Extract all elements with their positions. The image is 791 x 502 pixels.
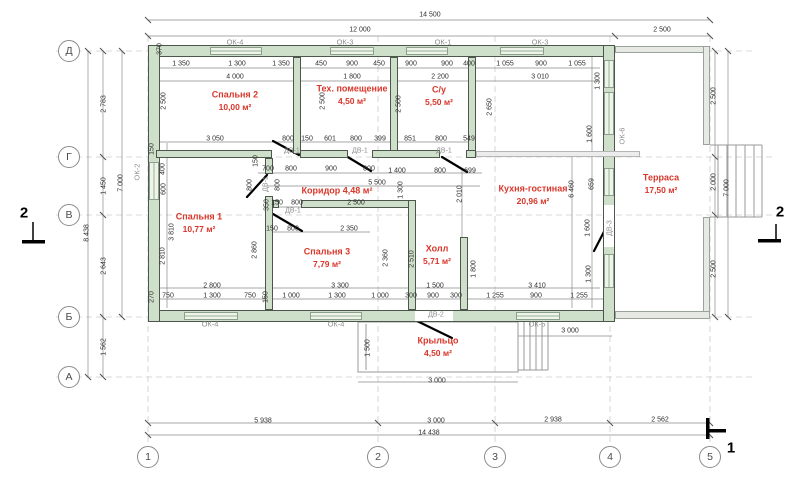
dim-label: 1 255	[486, 293, 504, 300]
dim-label: 400	[463, 61, 475, 68]
dim-label: 14 438	[418, 430, 439, 437]
dim-label: 699	[464, 168, 476, 175]
grid-bubble-4: 4	[599, 446, 621, 468]
dim-label: 1 562	[101, 338, 108, 356]
window-label: ОК-3	[532, 38, 549, 46]
dim-label: 4 000	[226, 74, 244, 81]
grid-bubble-1: 1	[137, 446, 159, 468]
dim-label: 1 450	[101, 177, 108, 195]
dim-label: 900	[530, 293, 542, 300]
dim-label: 1 300	[586, 265, 593, 283]
dim-label: 1 300	[203, 293, 221, 300]
door-label: ДВ-3	[607, 220, 614, 236]
door-label: ДВ-1	[284, 148, 300, 155]
dim-label: 150	[253, 155, 260, 167]
dim-label: 600	[161, 183, 168, 195]
dim-label: 350	[264, 199, 271, 211]
dim-label: 3 000	[427, 418, 445, 425]
dim-label: 7 000	[724, 179, 731, 197]
dim-label: 900	[535, 61, 547, 68]
window-right3	[604, 168, 614, 196]
dim-label: 2 643	[101, 257, 108, 275]
dim-label: 800	[247, 179, 254, 191]
dim-label: 1 055	[568, 61, 586, 68]
dim-label: 800	[435, 136, 447, 143]
room-name: Терраса	[643, 174, 679, 183]
room-area: 10,77 м²	[183, 225, 216, 234]
dim-label: 270	[149, 291, 156, 303]
dim-label: 800	[434, 168, 446, 175]
dim-label: 3 300	[331, 283, 349, 290]
dim-label: 851	[404, 136, 416, 143]
section-mark-1: 1	[727, 440, 735, 457]
dim-label: 2 500	[653, 27, 671, 34]
dim-label: 7 000	[118, 174, 125, 192]
dim-label: 1 300	[228, 61, 246, 68]
door-label: ДВ-1	[436, 148, 452, 155]
dim-label: 400	[160, 163, 167, 175]
dim-label: 2 810	[160, 247, 167, 265]
dim-label: 1 255	[570, 293, 588, 300]
room-area: 5,71 м²	[423, 257, 451, 266]
dim-label: 601	[324, 136, 336, 143]
grid-bubble-Д: Д	[58, 40, 80, 62]
room-area: 4,50 м²	[424, 349, 452, 358]
dim-label: 2 860	[252, 241, 259, 259]
dim-label: 12 000	[349, 27, 370, 34]
dim-label: 900	[427, 293, 439, 300]
dim-label: 900	[346, 61, 358, 68]
dim-label: 3 050	[206, 136, 224, 143]
dim-label: 450	[373, 61, 385, 68]
dim-label: 3 000	[561, 328, 579, 335]
dim-label: 1 500	[426, 283, 444, 290]
door-label: ДВ-1	[285, 208, 301, 215]
dim-label: 2 350	[340, 226, 358, 233]
dim-label: 800	[363, 166, 375, 173]
dim-label: 1 300	[398, 181, 405, 199]
door-label: ДВ-1	[263, 176, 270, 192]
dim-label: 1 300	[328, 293, 346, 300]
dim-label: 2 510	[409, 250, 416, 268]
dim-label: 1 600	[585, 219, 592, 237]
room-name: Коридор 4,48 м²	[302, 187, 373, 196]
dim-label: 2 938	[544, 417, 562, 424]
beam-line	[476, 151, 640, 157]
dim-label: 1 000	[282, 293, 300, 300]
dim-label: 3 810	[169, 223, 176, 241]
dim-label: 2 500	[711, 87, 718, 105]
dim-label: 1 055	[496, 61, 514, 68]
room-area: 10,00 м²	[219, 103, 252, 112]
dim-label: 3 010	[531, 74, 549, 81]
door-label: ДВ-1	[352, 148, 368, 155]
dim-label: 150	[263, 291, 270, 303]
dim-label: 1 300	[595, 72, 602, 90]
room-name: Спальня 2	[212, 91, 258, 100]
door-label: ДВ-2	[428, 312, 444, 319]
room-area: 5,50 м²	[425, 98, 453, 107]
grid-bubble-3: 3	[484, 446, 506, 468]
window-label: ОК-5	[529, 320, 546, 328]
dim-label: 800	[275, 179, 282, 191]
window-right2	[604, 92, 614, 135]
dim-label: 750	[162, 293, 174, 300]
room-name: Тех. помещение	[317, 85, 388, 94]
grid-bubble-2: 2	[367, 446, 389, 468]
dim-label: 3 410	[528, 283, 546, 290]
dim-label: 800	[291, 200, 303, 207]
dim-label: 6 460	[569, 180, 576, 198]
grid-bubble-5: 5	[699, 446, 721, 468]
dim-label: 150	[271, 200, 283, 207]
dim-label: 2 500	[711, 260, 718, 278]
section-flags	[22, 222, 781, 439]
window-label: ОК-6	[618, 128, 626, 145]
room-area: 7,79 м²	[313, 260, 341, 269]
room-name: С/у	[432, 86, 446, 95]
window-ok3	[330, 47, 374, 55]
dim-label: 1 350	[272, 61, 290, 68]
wall-corridor-top	[466, 150, 476, 158]
dim-label: 2 800	[203, 283, 221, 290]
dim-label: 1 800	[343, 74, 361, 81]
grid-bubble-А: А	[58, 366, 80, 388]
room-area: 20,96 м²	[517, 197, 550, 206]
window-label: ОК-4	[328, 320, 345, 328]
wall-partition	[293, 57, 301, 154]
terrace-wall-right	[703, 46, 710, 145]
dim-label: 8 438	[84, 224, 91, 242]
window-right4	[604, 254, 614, 288]
dim-label: 300	[450, 293, 462, 300]
dim-label: 1 400	[388, 168, 406, 175]
dim-label: 2 500	[161, 92, 168, 110]
dim-label: 1 350	[172, 61, 190, 68]
window-label: ОК-4	[202, 320, 219, 328]
dim-label: 2 783	[101, 95, 108, 113]
dim-label: 2 360	[383, 249, 390, 267]
terrace-wall-bottom	[615, 311, 710, 319]
dim-label: 2 500	[320, 92, 327, 110]
dim-label: 700	[262, 166, 274, 173]
dim-label: 2 000	[711, 173, 718, 191]
grid-bubble-Б: Б	[58, 306, 80, 328]
window-label: ОК-3	[337, 38, 354, 46]
dim-label: 1 500	[365, 339, 372, 357]
dim-label: 399	[374, 136, 386, 143]
room-area: 4,50 м²	[338, 97, 366, 106]
terrace-wall-top	[615, 46, 710, 53]
dim-label: 1 800	[471, 260, 478, 278]
room-name: Холл	[426, 245, 449, 254]
dim-label: 150	[301, 136, 313, 143]
window-ok2	[149, 162, 159, 200]
dim-label: 800	[350, 136, 362, 143]
dim-label: 900	[405, 61, 417, 68]
dim-label: 1 600	[587, 125, 594, 143]
dim-label: 750	[244, 293, 256, 300]
dim-label: 2 010	[457, 185, 464, 203]
terrace-wall-right	[703, 217, 710, 318]
window-right1	[604, 60, 614, 88]
dim-label: 2 500	[347, 200, 365, 207]
dim-label: 800	[285, 166, 297, 173]
dim-label: 150	[266, 226, 278, 233]
wall-corridor-top	[372, 150, 440, 158]
floor-plan-canvas: 14 50012 0002 5001 3501 3001 35045090045…	[0, 0, 791, 502]
dim-label: 3 000	[428, 378, 446, 385]
window-ok1	[406, 47, 448, 55]
room-name: Кухня-гостиная	[499, 185, 568, 194]
section-mark-2: 2	[776, 204, 784, 221]
dim-label: 300	[405, 293, 417, 300]
window-label: ОК-1	[435, 38, 452, 46]
room-name: Крыльцо	[418, 337, 459, 346]
window-label: ОК-4	[227, 38, 244, 46]
dim-label: 5 938	[254, 418, 272, 425]
window-ok4	[210, 47, 262, 55]
dim-label: 2 650	[487, 98, 494, 116]
dim-label: 2 200	[431, 74, 449, 81]
dim-label: 800	[282, 136, 294, 143]
dim-label: 900	[325, 166, 337, 173]
section-mark-2: 2	[20, 205, 28, 222]
dim-label: 900	[441, 61, 453, 68]
dim-label: 450	[315, 61, 327, 68]
grid-bubble-Г: Г	[58, 146, 80, 168]
dim-label: 800	[287, 226, 299, 233]
room-area: 17,50 м²	[645, 186, 678, 195]
dim-label: 549	[463, 136, 475, 143]
dim-label: 150	[149, 143, 156, 155]
grid-bubble-В: В	[58, 204, 80, 226]
room-name: Спальня 1	[176, 213, 222, 222]
room-name: Спальня 3	[304, 248, 350, 257]
window-label: ОК-2	[133, 164, 141, 181]
window-ok3b	[500, 47, 544, 55]
wall-corridor-top	[300, 150, 348, 158]
dim-label: 1 000	[371, 293, 389, 300]
dim-label: 2 562	[651, 417, 669, 424]
dim-label: 14 500	[419, 12, 440, 19]
dim-label: 370	[157, 43, 164, 55]
door-leaves	[247, 141, 609, 338]
dim-label: 2 500	[396, 95, 403, 113]
dim-label: 659	[589, 178, 596, 190]
